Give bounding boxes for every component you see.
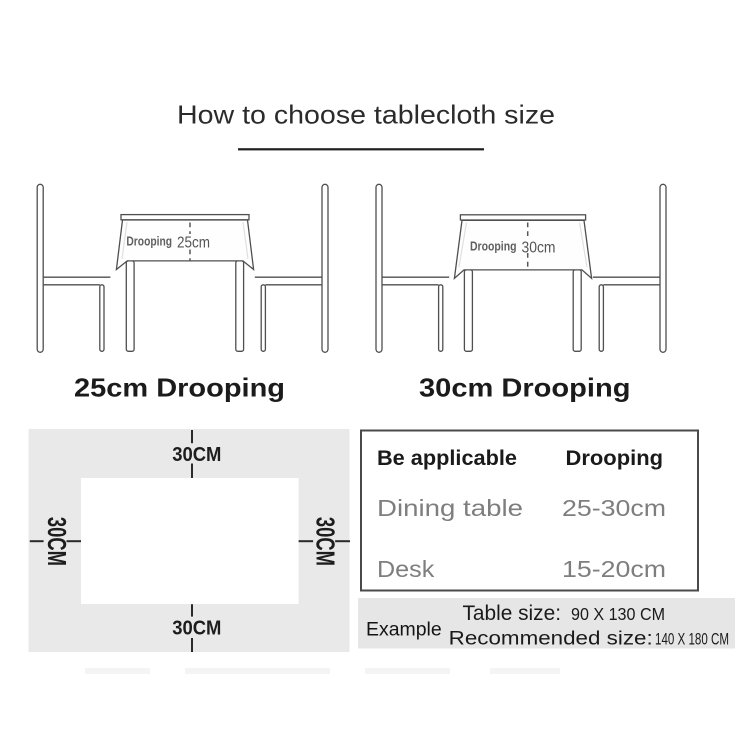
svg-text:25cm Drooping: 25cm Drooping [74,372,285,402]
svg-text:25cm: 25cm [177,235,210,252]
svg-text:30CM: 30CM [172,618,221,640]
svg-text:90 X 130 CM: 90 X 130 CM [571,604,665,624]
svg-text:Drooping: Drooping [126,235,172,249]
svg-text:140 X 180 CM: 140 X 180 CM [655,631,729,649]
svg-text:Table size:: Table size: [463,602,562,625]
svg-text:30cm Drooping: 30cm Drooping [419,372,631,402]
svg-text:Drooping: Drooping [470,239,517,253]
svg-text:How to choose tablecloth size: How to choose tablecloth size [177,100,555,130]
svg-text:25-30cm: 25-30cm [562,495,666,521]
svg-text:Desk: Desk [377,556,435,582]
svg-text:30CM: 30CM [172,444,221,466]
svg-text:30CM: 30CM [42,517,70,566]
svg-text:15-20cm: 15-20cm [562,556,666,582]
svg-text:Dining table: Dining table [377,495,523,521]
svg-text:30CM: 30CM [311,517,339,566]
svg-text:Drooping: Drooping [566,447,664,470]
svg-text:Example: Example [366,620,442,641]
svg-text:Recommended size:: Recommended size: [449,628,653,650]
svg-text:30cm: 30cm [522,240,556,257]
svg-text:Be applicable: Be applicable [377,447,517,470]
